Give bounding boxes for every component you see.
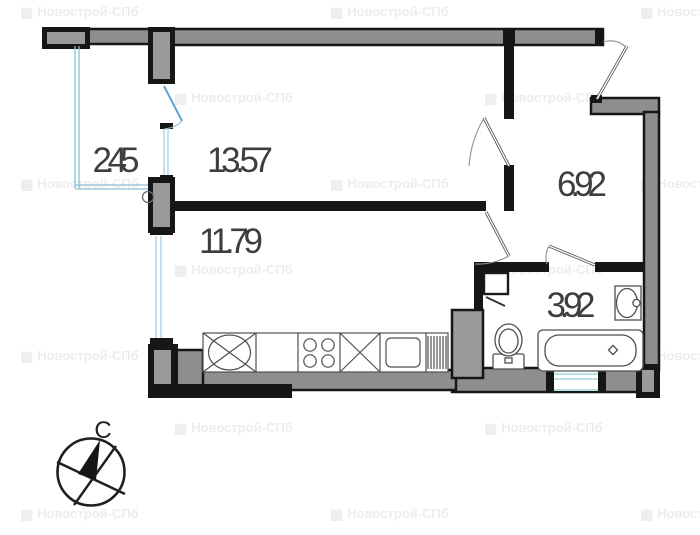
wall-bath-left (474, 262, 483, 312)
north-label: С (94, 417, 111, 444)
ventilation-shaft (484, 273, 508, 294)
doors (469, 41, 627, 265)
pillar-lower-core (153, 183, 170, 227)
kitchen-door-leaf-inner (486, 212, 509, 256)
window-cap (160, 175, 173, 181)
vent-mark (486, 297, 505, 306)
entry-jamb-bottom (591, 95, 602, 103)
wall-living-hall-lower (504, 165, 514, 211)
wall-right (644, 112, 659, 370)
drainer-hatch-icon (428, 336, 446, 369)
bathroom-door-swing-arc (546, 246, 549, 264)
wall-living-kitchen (172, 201, 486, 211)
room-area-label-hallway: 6.92 (557, 165, 607, 204)
wall-top (156, 29, 603, 45)
window-frame (161, 127, 172, 177)
compass-rose: С (57, 417, 125, 506)
pillar-upper-core (153, 32, 170, 79)
room-area-label-balcony: 2.45 (93, 141, 140, 180)
kitchen-counter (203, 333, 448, 372)
bathtub-icon (538, 330, 643, 371)
entrance-door-swing-arc (603, 41, 626, 47)
corner-block-core (47, 32, 85, 44)
window-frame (552, 369, 600, 391)
wall-shaft-pillar (452, 310, 483, 378)
wall-living-hall-upper (504, 29, 514, 119)
wall-bath-top-right (595, 262, 645, 272)
wall-bottom-lip (148, 384, 292, 398)
room-area-label-bathroom: 3.92 (547, 286, 596, 325)
room-area-label-living-room: 13.57 (207, 141, 273, 180)
bathroom-door-leaf-inner (549, 246, 595, 265)
window-cap (150, 227, 173, 235)
living-room-door-leaf-inner (484, 118, 509, 166)
entry-jamb-top (595, 29, 603, 45)
balcony-door-leaf (164, 86, 182, 121)
washbasin-icon (615, 286, 641, 320)
entrance-door-leaf-inner (597, 46, 627, 99)
corner-block-bottom-right-core (642, 370, 654, 392)
living-room-door-swing-arc (469, 118, 484, 166)
window-cap (150, 338, 173, 346)
toilet-icon (493, 324, 524, 369)
floor-plan: 2.45 13.57 11.79 6.92 3.92 С (0, 0, 700, 535)
room-area-label-kitchen-living: 11.79 (199, 222, 263, 261)
